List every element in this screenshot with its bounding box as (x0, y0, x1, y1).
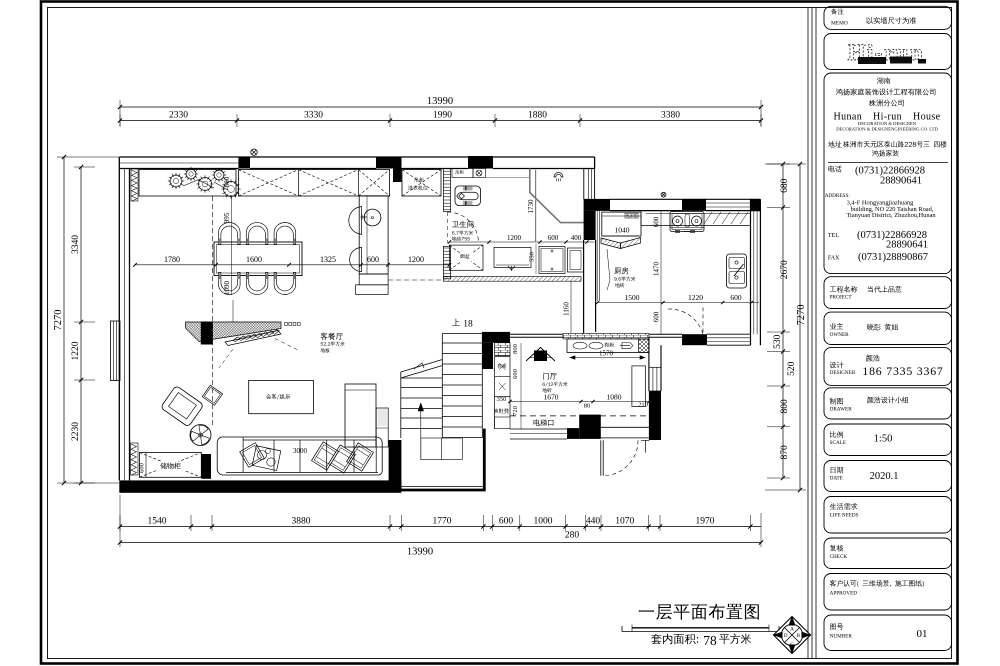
svg-text:TEL: TEL (828, 233, 839, 239)
svg-text:Tianyuan District, Zhuzhou,Hun: Tianyuan District, Zhuzhou,Hunan (846, 212, 936, 219)
svg-text:1090: 1090 (223, 281, 231, 296)
svg-text:APPROVED: APPROVED (830, 591, 858, 597)
svg-text:350: 350 (497, 396, 507, 403)
svg-text:1220: 1220 (71, 341, 81, 360)
svg-text:CHECK: CHECK (830, 554, 848, 560)
svg-text:A: A (790, 627, 794, 633)
svg-text:600: 600 (653, 216, 661, 227)
svg-text:800: 800 (512, 344, 519, 354)
svg-text:1970: 1970 (696, 517, 715, 527)
svg-text:DESIGNER: DESIGNER (830, 370, 856, 376)
svg-text:28890641: 28890641 (880, 176, 922, 187)
svg-text:13990: 13990 (427, 96, 453, 107)
svg-text:1:50: 1:50 (874, 434, 893, 445)
svg-text:600: 600 (548, 234, 559, 242)
svg-text:520: 520 (787, 361, 797, 376)
svg-text:600: 600 (139, 463, 146, 473)
svg-text:DECORATION & DESIGNENGINEERING: DECORATION & DESIGNENGINEERING CO. LTD (836, 127, 938, 132)
svg-text:FAX: FAX (828, 255, 840, 261)
svg-text:3000: 3000 (293, 447, 308, 455)
svg-text:1070: 1070 (615, 517, 634, 527)
svg-text:13990: 13990 (407, 547, 433, 558)
svg-text:PROJECT: PROJECT (830, 294, 853, 300)
svg-text:530: 530 (773, 334, 783, 349)
svg-text:DRAWER: DRAWER (830, 407, 853, 413)
svg-text:1770: 1770 (433, 517, 452, 527)
svg-text:3340: 3340 (71, 235, 81, 254)
svg-text:ADDRESS:: ADDRESS: (825, 193, 851, 199)
svg-text:NUMBER: NUMBER (830, 634, 853, 640)
svg-text:78: 78 (703, 633, 717, 648)
svg-text:SCALE: SCALE (830, 440, 846, 446)
svg-text:1080: 1080 (607, 393, 622, 402)
svg-text:600: 600 (653, 311, 661, 322)
svg-text:186 7335 3367: 186 7335 3367 (862, 364, 943, 378)
svg-text:MEMO: MEMO (831, 21, 848, 27)
svg-text:1670: 1670 (544, 393, 559, 402)
svg-text:D: D (784, 633, 788, 639)
svg-text:440: 440 (586, 517, 601, 527)
svg-text:7270: 7270 (796, 305, 807, 326)
svg-text:01: 01 (917, 628, 928, 640)
svg-text:1470: 1470 (653, 262, 661, 277)
svg-text:LIFE NEEDS: LIFE NEEDS (830, 513, 859, 519)
svg-text:DATE: DATE (830, 476, 843, 482)
svg-text:1780: 1780 (164, 255, 180, 264)
svg-text:995: 995 (223, 212, 231, 223)
svg-text:80: 80 (584, 403, 591, 410)
svg-text:680: 680 (780, 178, 790, 193)
svg-text:OWNER: OWNER (830, 332, 850, 338)
svg-text:2020.1: 2020.1 (870, 471, 899, 482)
svg-text:1200: 1200 (408, 255, 424, 264)
svg-text:1160: 1160 (563, 302, 571, 316)
svg-text:600: 600 (367, 255, 379, 264)
svg-text:1600: 1600 (246, 255, 262, 264)
svg-text:800: 800 (780, 399, 790, 414)
svg-text:550: 550 (529, 252, 536, 262)
svg-text:3380: 3380 (661, 111, 680, 121)
svg-text:280: 280 (565, 531, 580, 541)
svg-text:18: 18 (463, 320, 473, 330)
svg-text:C: C (790, 642, 794, 648)
svg-text:1880: 1880 (528, 111, 547, 121)
svg-text:210: 210 (638, 401, 648, 408)
svg-text:1540: 1540 (148, 517, 167, 527)
svg-text:2670: 2670 (780, 260, 790, 279)
svg-text:1220: 1220 (688, 293, 703, 302)
svg-text:600: 600 (223, 176, 231, 187)
svg-text:1570: 1570 (599, 350, 614, 358)
svg-text:1000: 1000 (534, 517, 553, 527)
svg-text:1200: 1200 (507, 234, 522, 242)
svg-text:3880: 3880 (292, 517, 311, 527)
svg-text:400: 400 (571, 234, 582, 242)
svg-text:28890641: 28890641 (886, 240, 928, 251)
svg-text:2230: 2230 (71, 422, 81, 441)
svg-text:600: 600 (730, 293, 742, 302)
svg-text:1730: 1730 (527, 199, 535, 214)
svg-text:1040: 1040 (615, 226, 630, 235)
svg-text:1990: 1990 (433, 111, 452, 121)
svg-text:870: 870 (780, 445, 790, 460)
svg-text:7270: 7270 (53, 310, 64, 331)
svg-text:3330: 3330 (304, 111, 323, 121)
svg-text:720: 720 (512, 406, 519, 416)
svg-text:2330: 2330 (169, 111, 188, 121)
svg-text:1500: 1500 (625, 293, 640, 302)
svg-text:600: 600 (512, 369, 519, 379)
svg-text:(0731)28890867: (0731)28890867 (858, 252, 928, 263)
svg-text:B: B (797, 633, 801, 639)
svg-text:DECORATION & DESIGNEN: DECORATION & DESIGNEN (858, 121, 917, 126)
svg-text:600: 600 (499, 517, 514, 527)
svg-text:1325: 1325 (320, 255, 336, 264)
